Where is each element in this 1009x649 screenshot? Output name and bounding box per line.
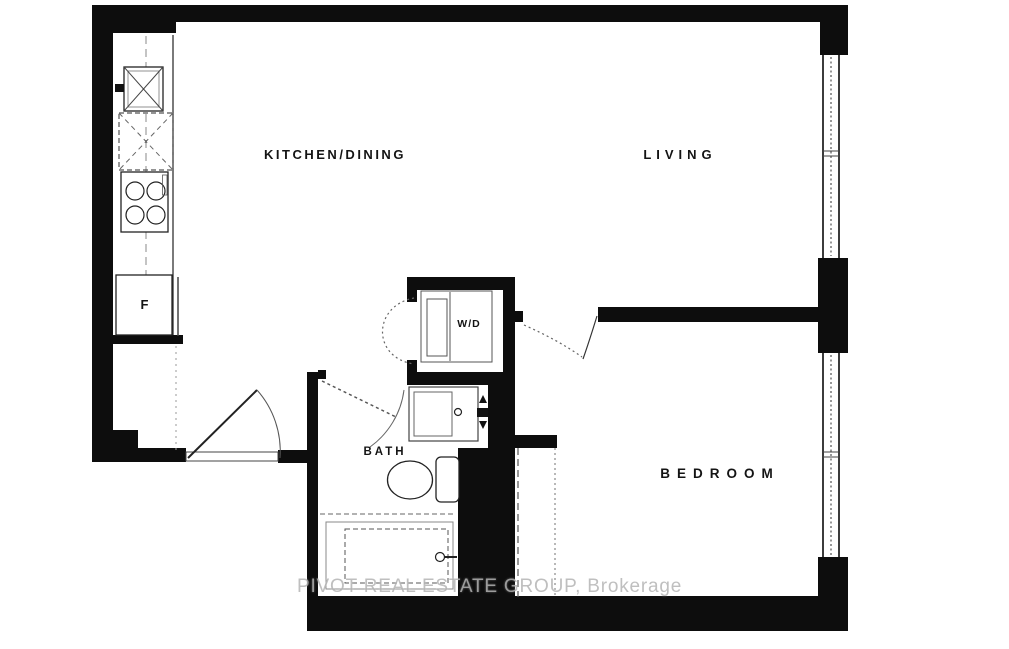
faucet-hot-icon: [479, 395, 487, 403]
sink-faucet-icon: [115, 84, 124, 92]
entry-door: [186, 390, 280, 461]
label-kitchen-dining: KITCHEN/DINING: [230, 148, 440, 161]
living-window-detail: [823, 57, 839, 256]
fixtures-layer: [0, 0, 1009, 649]
label-fridge: F: [116, 298, 173, 311]
vanity-sink: [409, 387, 488, 441]
wd-closet-door: [383, 298, 415, 364]
brokerage-watermark: PIVOT REAL ESTATE GROUP, Brokerage: [297, 576, 682, 598]
faucet-spout-icon: [477, 408, 488, 417]
label-bath: BATH: [347, 447, 423, 459]
floor-plan: KITCHEN/DINING LIVING BEDROOM BATH W/D F…: [0, 0, 1009, 649]
bedroom-closet: [518, 448, 555, 597]
label-bedroom: BEDROOM: [636, 467, 804, 481]
faucet-cold-icon: [479, 421, 487, 429]
kitchen-sink: [115, 67, 163, 111]
bath-door: [322, 381, 404, 447]
bedroom-door: [524, 316, 597, 359]
label-living: LIVING: [598, 148, 762, 161]
toilet: [388, 457, 460, 502]
bedroom-window-detail: [823, 355, 839, 555]
label-washer-dryer: W/D: [444, 319, 494, 330]
stove: [121, 172, 168, 232]
